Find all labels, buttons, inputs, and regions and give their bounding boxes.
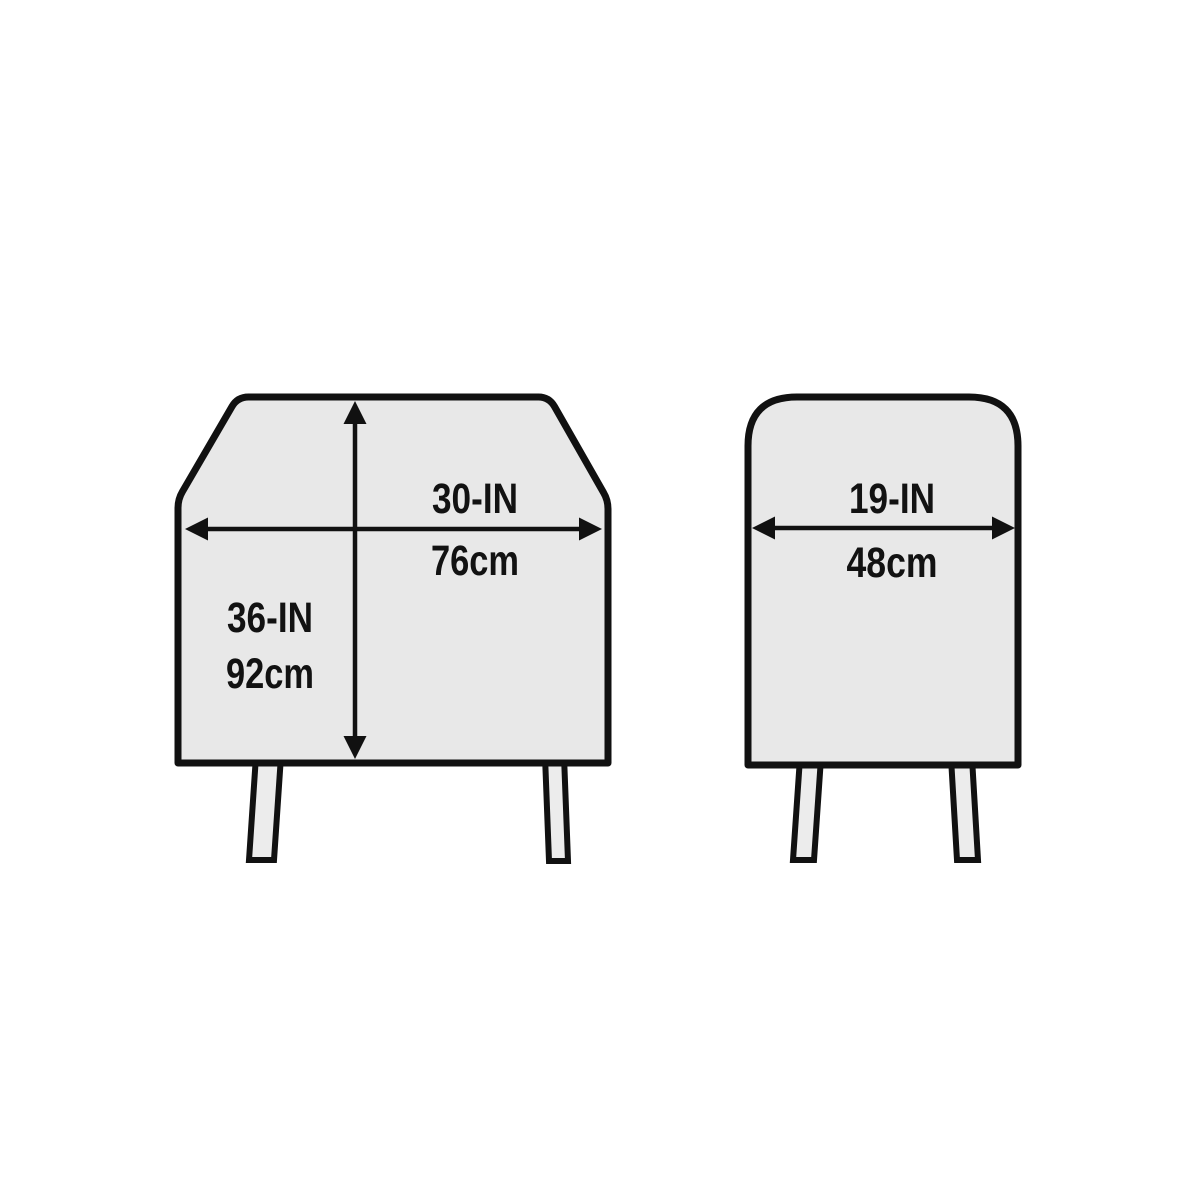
front-right-leg [545,756,568,861]
side-depth-label-in: 19-IN [849,475,935,523]
front-height-label-in: 36-IN [227,594,313,642]
front-body [178,397,608,763]
side-right-leg [951,758,978,860]
front-width-label-in: 30-IN [432,475,518,523]
side-view: 19-IN 48cm [748,397,1018,860]
front-view: 30-IN 76cm 36-IN 92cm [178,397,608,861]
front-width-label-cm: 76cm [431,537,519,585]
side-depth-label-cm: 48cm [847,539,938,587]
front-height-label-cm: 92cm [226,650,314,698]
front-left-leg [249,756,281,860]
side-left-leg [793,758,821,860]
grill-cover-dimensions-diagram: 30-IN 76cm 36-IN 92cm 19-IN 48cm [0,0,1200,1200]
diagram-canvas: 30-IN 76cm 36-IN 92cm 19-IN 48cm [0,0,1200,1200]
